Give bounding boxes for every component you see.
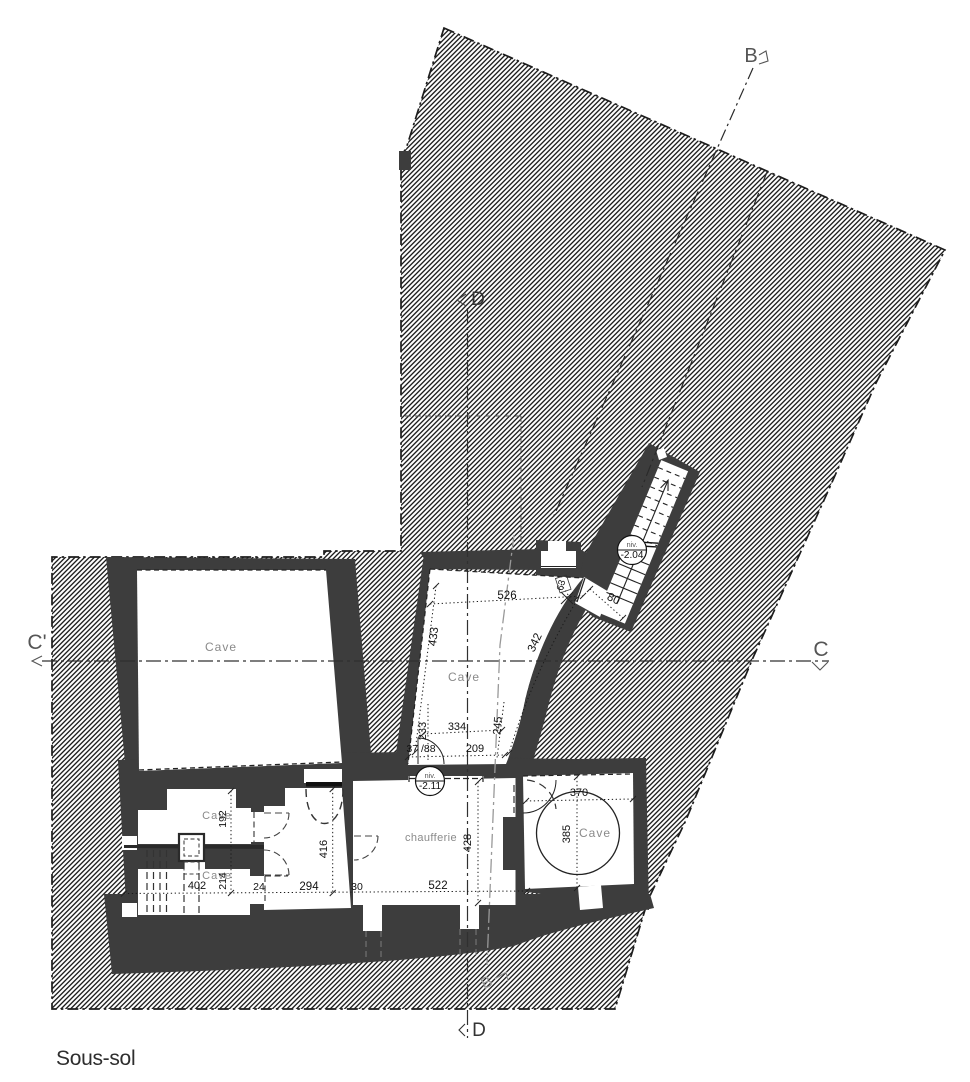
svg-text:niv.: niv. (626, 540, 637, 549)
svg-text:B: B (744, 45, 757, 67)
svg-text:402: 402 (188, 880, 206, 892)
svg-text:428: 428 (462, 834, 474, 852)
svg-text:37 /88: 37 /88 (406, 743, 435, 755)
svg-text:416: 416 (318, 840, 330, 858)
svg-text:214: 214 (217, 872, 229, 890)
svg-text:chaufferie: chaufferie (405, 832, 457, 844)
svg-text:C': C' (27, 631, 46, 654)
svg-text:385: 385 (561, 825, 573, 843)
svg-text:233: 233 (417, 722, 429, 740)
svg-text:433: 433 (427, 626, 441, 647)
svg-text:294: 294 (299, 881, 319, 893)
svg-text:-2.04: -2.04 (621, 550, 644, 561)
svg-text:370: 370 (570, 787, 588, 799)
svg-text:-2.11: -2.11 (419, 781, 441, 792)
svg-text:209: 209 (466, 743, 484, 755)
svg-text:D: D (471, 289, 485, 310)
svg-text:C: C (813, 638, 828, 661)
svg-text:niv.: niv. (424, 771, 435, 780)
svg-text:Cave: Cave (579, 826, 611, 840)
svg-text:24: 24 (253, 881, 265, 893)
svg-text:245: 245 (491, 716, 505, 735)
svg-text:522: 522 (428, 880, 447, 892)
svg-text:Sous-sol: Sous-sol (56, 1047, 135, 1070)
svg-text:Cave: Cave (448, 670, 480, 684)
svg-text:334: 334 (448, 721, 466, 733)
svg-text:30: 30 (351, 881, 363, 893)
svg-text:Cave: Cave (205, 640, 237, 654)
svg-text:526: 526 (497, 590, 516, 602)
svg-text:192: 192 (217, 810, 229, 828)
svg-text:D: D (472, 1020, 486, 1041)
